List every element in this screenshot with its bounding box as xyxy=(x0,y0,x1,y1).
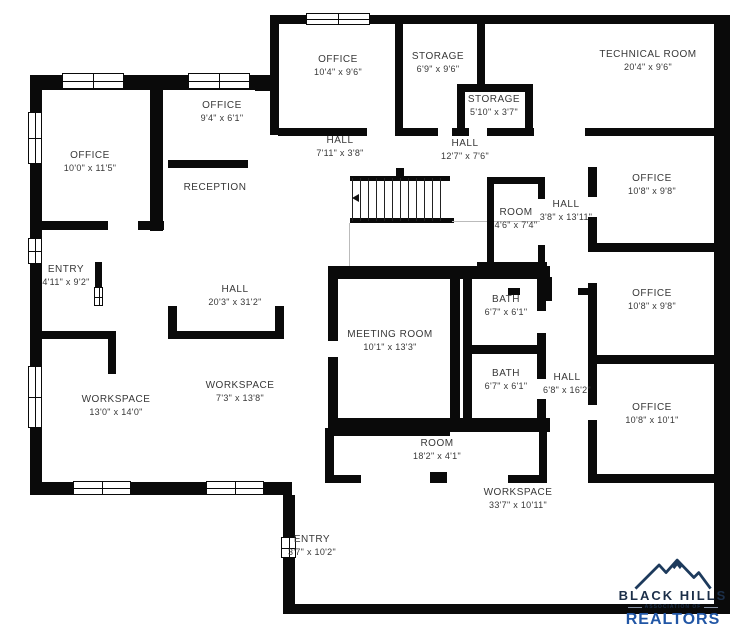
wall xyxy=(452,128,469,136)
room-label-storage-small: STORAGE 5'10" x 3'7" xyxy=(468,94,520,118)
wall xyxy=(588,167,597,197)
room-label-bath-upper: BATH 6'7" x 6'1" xyxy=(485,294,528,318)
realtors-text: REALTORS xyxy=(616,611,730,629)
room-label-office-small: OFFICE 9'4" x 6'1" xyxy=(201,100,244,124)
room-label-office-right-2: OFFICE 10'8" x 9'8" xyxy=(628,288,676,312)
room-label-workspace-center: WORKSPACE 7'3" x 13'8" xyxy=(206,380,275,404)
window xyxy=(306,13,370,25)
wall xyxy=(450,279,460,429)
window xyxy=(28,238,42,264)
wall xyxy=(463,279,472,429)
wall xyxy=(108,338,116,374)
wall xyxy=(714,15,730,614)
wall xyxy=(487,177,494,267)
wall xyxy=(543,277,552,301)
room-label-workspace-left: WORKSPACE 13'0" x 14'0" xyxy=(82,394,151,418)
room-label-bath-lower: BATH 6'7" x 6'1" xyxy=(485,368,528,392)
window xyxy=(188,73,250,89)
wall xyxy=(588,420,597,482)
brand-logo: BLACK HILLS ASSOCIATION OF REALTORS xyxy=(616,558,730,629)
wall xyxy=(588,474,714,483)
room-label-meeting-room: MEETING ROOM 10'1" x 13'3" xyxy=(347,329,432,353)
room-label-hall-right-upper: HALL 3'8" x 13'11" xyxy=(540,199,593,223)
room-label-hall-top-left: HALL 7'11" x 3'8" xyxy=(316,135,363,159)
wall xyxy=(477,15,485,88)
wall xyxy=(588,283,597,357)
room-label-office-right-1: OFFICE 10'8" x 9'8" xyxy=(628,173,676,197)
wall xyxy=(33,221,108,230)
room-label-office-left: OFFICE 10'0" x 11'5" xyxy=(64,150,117,174)
floor-plan: OFFICE 10'4" x 9'6" STORAGE 6'9" x 9'6" … xyxy=(0,0,750,634)
wall xyxy=(325,475,361,483)
wall xyxy=(487,177,545,184)
room-label-technical-room: TECHNICAL ROOM 20'4" x 9'6" xyxy=(599,49,696,73)
wall xyxy=(168,160,248,168)
brand-text: BLACK HILLS xyxy=(616,588,730,603)
room-label-reception: RECEPTION xyxy=(184,182,247,195)
wall xyxy=(398,128,438,136)
wall xyxy=(325,428,450,436)
wall xyxy=(150,88,163,231)
room-label-room-small: ROOM 4'6" x 7'4" xyxy=(495,207,538,231)
staircase xyxy=(352,178,448,221)
wall xyxy=(477,262,547,270)
wall xyxy=(539,420,547,483)
wall xyxy=(487,128,534,136)
stairs-direction-arrow xyxy=(352,194,359,202)
wall xyxy=(138,221,164,230)
window xyxy=(28,366,42,428)
door-jamb xyxy=(578,288,588,295)
wall xyxy=(168,331,284,339)
room-label-workspace-bottom: WORKSPACE 33'7" x 10'11" xyxy=(484,487,553,511)
wall xyxy=(430,472,447,483)
wall xyxy=(328,279,338,341)
wall xyxy=(95,262,102,288)
wall xyxy=(40,331,116,339)
wall xyxy=(585,128,714,136)
mountain-icon xyxy=(631,558,715,590)
wall xyxy=(588,243,714,252)
room-label-hall-right-lower: HALL 6'8" x 16'2" xyxy=(543,372,591,396)
room-label-hall-center: HALL 20'3" x 31'2" xyxy=(208,284,261,308)
room-label-entry-bottom: ENTRY 3'7" x 10'2" xyxy=(288,534,336,558)
guide-line xyxy=(349,223,350,268)
wall xyxy=(395,15,403,136)
wall xyxy=(538,177,545,199)
wall xyxy=(472,345,546,354)
room-label-office-right-3: OFFICE 10'8" x 10'1" xyxy=(625,402,678,426)
window xyxy=(206,481,264,495)
room-label-storage-large: STORAGE 6'9" x 9'6" xyxy=(412,51,464,75)
window xyxy=(62,73,124,89)
room-label-office-top: OFFICE 10'4" x 9'6" xyxy=(314,54,362,78)
wall xyxy=(588,355,714,364)
room-label-room-long: ROOM 18'2" x 4'1" xyxy=(413,438,461,462)
brand-subtitle: ASSOCIATION OF xyxy=(616,604,730,610)
wall xyxy=(457,84,533,92)
window xyxy=(73,481,131,495)
window xyxy=(28,112,42,164)
room-label-entry-left: ENTRY 4'11" x 9'2" xyxy=(42,264,89,288)
window xyxy=(94,287,103,306)
room-label-hall-top-right: HALL 12'7" x 7'6" xyxy=(441,138,489,162)
